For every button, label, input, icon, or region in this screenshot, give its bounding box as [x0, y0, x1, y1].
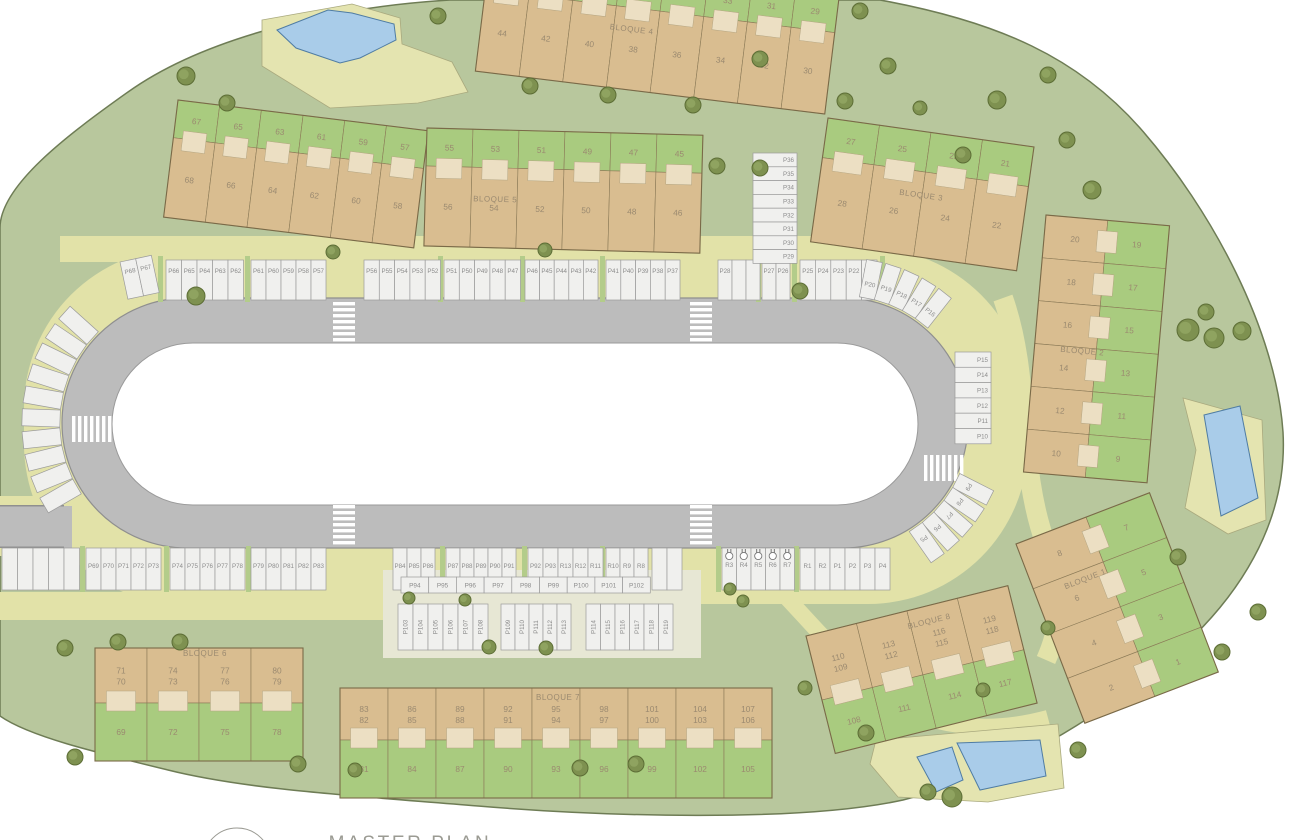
crosswalk-bar	[333, 517, 355, 520]
tree-icon	[852, 3, 868, 19]
stall-label: P41	[608, 268, 620, 275]
stall-label: P86	[422, 563, 434, 570]
unit-number: 24	[940, 212, 951, 223]
patio-terrace	[987, 173, 1019, 197]
stall-label: P80	[268, 563, 280, 570]
tree-canopy-highlight	[990, 93, 1000, 103]
patio-terrace	[351, 728, 378, 748]
tree-icon	[522, 78, 538, 94]
stall-label: P43	[571, 268, 583, 275]
unit-number: 94	[551, 715, 561, 725]
patio-terrace	[620, 163, 646, 184]
parking-stall-P55[interactable]	[379, 260, 394, 300]
patio-terrace	[935, 166, 967, 190]
tree-canopy-highlight	[460, 596, 467, 603]
tree-canopy-highlight	[1200, 306, 1209, 315]
tree-canopy-highlight	[1085, 183, 1095, 193]
tree-icon	[600, 87, 616, 103]
crosswalk-bar	[954, 455, 957, 481]
unit-number: 88	[455, 715, 465, 725]
unit-number: 107	[741, 704, 755, 714]
crosswalk-bar	[936, 455, 939, 481]
tree-canopy-highlight	[944, 790, 955, 801]
stall-label: P51	[446, 268, 458, 275]
parking-stall-P54[interactable]	[395, 260, 410, 300]
stall-label: P72	[133, 563, 145, 570]
stall-label: P81	[283, 563, 295, 570]
stall-label: P94	[409, 582, 421, 589]
patio-terrace	[884, 159, 916, 183]
unit-number: 56	[443, 201, 453, 211]
tree-icon	[172, 634, 188, 650]
tree-canopy-highlight	[179, 69, 189, 79]
bloque-7: 8382868589889291959498971011001041031071…	[340, 688, 772, 798]
parking-row: P79P80P81P82P83	[251, 548, 326, 590]
bloque-5: 555351494745565452504846BLOQUE 5	[424, 128, 703, 253]
patio-terrace	[735, 728, 762, 748]
parking-stall-unmarked[interactable]	[64, 548, 80, 590]
unit-number: 97	[599, 715, 609, 725]
patio-terrace	[399, 728, 426, 748]
crosswalk-bar	[333, 332, 355, 335]
stall-label: P26	[777, 268, 789, 275]
tree-icon	[798, 681, 812, 695]
tree-icon	[219, 95, 235, 111]
patio-terrace	[262, 691, 291, 711]
unit-number: 72	[168, 727, 178, 737]
parking-stall-P26[interactable]	[776, 260, 790, 300]
parking-stall-P47[interactable]	[505, 260, 520, 300]
master-plan-page: P68P67P66P65P64P63P62P61P60P59P58P57P56P…	[0, 0, 1290, 840]
crosswalk-bar	[690, 302, 712, 305]
stall-label: P107	[463, 619, 470, 634]
patio-terrace	[106, 691, 135, 711]
patio-terrace	[1077, 445, 1099, 468]
parking-stall-P53[interactable]	[410, 260, 425, 300]
stall-label: P111	[533, 620, 540, 634]
patio-terrace	[799, 20, 826, 43]
unit-number: 21	[1000, 158, 1011, 169]
lower-path	[0, 592, 392, 620]
stall-label: P10	[977, 433, 989, 440]
parking-stall-P41[interactable]	[606, 260, 621, 300]
stall-label: R7	[783, 562, 791, 569]
patio-terrace	[264, 141, 290, 164]
legend-title: MASTER PLAN	[329, 833, 492, 840]
stall-label: P102	[629, 582, 644, 589]
parking-stall-P22[interactable]	[846, 260, 861, 300]
parking-stall-P49[interactable]	[475, 260, 490, 300]
stall-label: P1	[834, 563, 842, 570]
parking-stall-P44[interactable]	[554, 260, 569, 300]
crosswalk-bar	[690, 308, 712, 311]
parking-stall-P38[interactable]	[650, 260, 665, 300]
patio-terrace	[1081, 402, 1103, 425]
unit-number: 26	[888, 205, 899, 216]
stall-label: P4	[879, 563, 887, 570]
stall-label: P105	[433, 619, 440, 634]
unit-number: 60	[351, 195, 362, 206]
parking-row: R1R2P1P2P3P4	[800, 548, 890, 590]
stall-label: P74	[172, 563, 184, 570]
parking-stall-P58[interactable]	[296, 260, 311, 300]
stall-label: P31	[783, 226, 795, 233]
parking-row: P74P75P76P77P78	[170, 548, 245, 590]
parking-row-vertical-labels: P114P115P116P117P118P119	[586, 604, 673, 650]
tree-icon	[628, 756, 644, 772]
parking-stall-P40[interactable]	[621, 260, 636, 300]
stall-label: P58	[298, 268, 310, 275]
patio-terrace	[348, 151, 374, 174]
patio-terrace	[666, 164, 692, 185]
tree-canopy-highlight	[524, 80, 533, 89]
tree-icon	[1041, 621, 1055, 635]
tree-icon	[177, 67, 195, 85]
tree-canopy-highlight	[839, 95, 848, 104]
tree-canopy-highlight	[59, 642, 68, 651]
tree-icon	[1170, 549, 1186, 565]
crosswalk-bar	[333, 511, 355, 514]
crosswalk-bar	[78, 416, 81, 442]
ev-plug-body	[784, 552, 791, 559]
bloque-2: 20181614121019171513119BLOQUE 2	[1024, 215, 1170, 483]
parking-stall-P37[interactable]	[665, 260, 680, 300]
stall-label: P36	[783, 157, 795, 164]
stall-label: P85	[408, 563, 420, 570]
tree-canopy-highlight	[174, 636, 183, 645]
unit-number: 71	[116, 666, 126, 676]
stall-label: R4	[740, 562, 748, 569]
unit-number: 95	[551, 704, 561, 714]
parking-stall-P52[interactable]	[425, 260, 440, 300]
tree-canopy-highlight	[794, 285, 803, 294]
parking-stall-P42[interactable]	[583, 260, 598, 300]
parking-stall-P59[interactable]	[281, 260, 296, 300]
stall-label: R9	[623, 563, 631, 570]
patio-terrace	[158, 691, 187, 711]
stall-label: P3	[864, 563, 872, 570]
stall-label: P29	[783, 254, 795, 261]
parking-stall-unmarked[interactable]	[22, 428, 62, 449]
stall-label: P104	[418, 619, 425, 634]
tree-icon	[858, 725, 874, 741]
planting-divider	[246, 546, 251, 592]
parking-stall-P39[interactable]	[636, 260, 651, 300]
stall-label: P44	[556, 268, 568, 275]
unit-number: 27	[846, 136, 857, 147]
tree-canopy-highlight	[922, 786, 931, 795]
parking-row-vertical-labels: P103P104P105P106P107P108	[398, 604, 488, 650]
crosswalk-bar	[333, 302, 355, 305]
parking-row-wide: P94P95P96P97P98P99P100P101P102	[401, 577, 650, 593]
tree-icon	[1083, 181, 1101, 199]
stall-label: P40	[623, 268, 635, 275]
tree-icon	[792, 283, 808, 299]
tree-canopy-highlight	[1042, 69, 1051, 78]
stall-label: P61	[253, 268, 265, 275]
unit-number: 45	[675, 148, 685, 158]
stall-label: P64	[199, 268, 211, 275]
unit-number: 82	[359, 715, 369, 725]
parking-stall-P43[interactable]	[569, 260, 584, 300]
parking-stall-unmarked[interactable]	[18, 548, 34, 590]
tree-icon	[1059, 132, 1075, 148]
unit-number: 78	[272, 727, 282, 737]
tree-icon	[955, 147, 971, 163]
tree-icon	[539, 641, 553, 655]
unit-number: 51	[537, 145, 547, 155]
parking-stall-P45[interactable]	[540, 260, 555, 300]
parking-stall-P23[interactable]	[831, 260, 846, 300]
unit-number: 28	[837, 198, 848, 209]
planting-divider	[245, 256, 250, 302]
inner-court	[112, 343, 918, 505]
planting-divider	[716, 546, 721, 592]
parking-stall-P66[interactable]	[166, 260, 182, 300]
parking-arc-stall	[22, 409, 61, 427]
tree-canopy-highlight	[432, 10, 441, 19]
parking-row	[2, 548, 80, 590]
crosswalk-bar	[690, 517, 712, 520]
tree-icon	[709, 158, 725, 174]
unit-number: 30	[803, 65, 814, 76]
parking-row: P46P45P44P43P42	[525, 260, 598, 300]
stall-label: R5	[754, 562, 762, 569]
tree-canopy-highlight	[404, 594, 411, 601]
patio-terrace	[181, 131, 207, 154]
unit-number: 89	[455, 704, 465, 714]
parking-stall-P51[interactable]	[444, 260, 459, 300]
unit-number: 58	[393, 200, 404, 211]
unit-number: 59	[358, 136, 369, 147]
tree-icon	[1204, 328, 1224, 348]
stall-label: P62	[230, 268, 242, 275]
unit-number: 52	[535, 204, 545, 214]
unit-number: 40	[584, 38, 595, 49]
stall-label: P119	[663, 619, 670, 634]
patio-terrace	[390, 156, 416, 179]
crosswalk-bar	[942, 455, 945, 481]
unit-number: 104	[693, 704, 707, 714]
stall-label: P114	[590, 619, 597, 634]
patio-terrace	[436, 158, 462, 179]
crosswalk-bar	[333, 541, 355, 544]
tree-canopy-highlight	[1235, 324, 1245, 334]
parking-stall-P28[interactable]	[718, 260, 732, 300]
tree-icon	[1233, 322, 1251, 340]
stall-label: P14	[977, 372, 989, 379]
parking-row: P69P70P71P72P73	[86, 548, 161, 590]
crosswalk-bar	[690, 505, 712, 508]
tree-icon	[1198, 304, 1214, 320]
tree-canopy-highlight	[539, 245, 547, 253]
patio-terrace	[210, 691, 239, 711]
unit-number: 49	[583, 146, 593, 156]
parking-stall-P50[interactable]	[459, 260, 474, 300]
parking-stall-P56[interactable]	[364, 260, 379, 300]
stall-label: P87	[447, 563, 459, 570]
stall-label: R6	[769, 562, 777, 569]
tree-icon	[110, 634, 126, 650]
tree-canopy-highlight	[738, 597, 745, 604]
stall-label: P57	[313, 268, 325, 275]
unit-number: 84	[407, 764, 417, 774]
unit-number: 87	[455, 764, 465, 774]
parking-stall-P27[interactable]	[762, 260, 776, 300]
parking-stall-unmarked[interactable]	[2, 548, 18, 590]
patio-terrace	[528, 161, 554, 182]
stall-label: P99	[548, 582, 560, 589]
tree-canopy-highlight	[69, 751, 78, 760]
unit-number: 100	[645, 715, 659, 725]
patio-terrace	[712, 10, 739, 33]
tree-canopy-highlight	[799, 683, 807, 691]
road-spur	[0, 506, 72, 548]
crosswalk-bar	[333, 320, 355, 323]
unit-number: 48	[627, 206, 637, 216]
tree-canopy-highlight	[754, 53, 763, 62]
patio-terrace	[625, 0, 652, 22]
tree-canopy-highlight	[574, 762, 583, 771]
unit-number: 77	[220, 666, 230, 676]
crosswalk-bar	[96, 416, 99, 442]
parking-row	[652, 548, 682, 590]
parking-row-vertical-labels: P109P110P111P112P113	[501, 604, 571, 650]
stall-label: P49	[477, 268, 489, 275]
parking-stall-unmarked[interactable]	[746, 260, 760, 300]
parking-stall-unmarked[interactable]	[732, 260, 746, 300]
parking-stall-P48[interactable]	[490, 260, 505, 300]
unit-number: 102	[693, 764, 707, 774]
unit-number: 55	[445, 142, 455, 152]
parking-stall-P62[interactable]	[228, 260, 244, 300]
stall-label: P97	[492, 582, 504, 589]
tree-icon	[1070, 742, 1086, 758]
unit-number: 93	[551, 764, 561, 774]
parking-stall-unmarked[interactable]	[667, 548, 682, 590]
stall-label: P106	[448, 619, 455, 634]
stall-label: P95	[437, 582, 449, 589]
tree-canopy-highlight	[725, 585, 732, 592]
parking-stall-P61[interactable]	[251, 260, 266, 300]
unit-number: 91	[503, 715, 513, 725]
tree-canopy-highlight	[957, 149, 966, 158]
crosswalk-bar	[690, 511, 712, 514]
patio-terrace	[543, 728, 570, 748]
patio-terrace	[832, 151, 864, 175]
tree-icon	[752, 51, 768, 67]
ev-plug-body	[740, 552, 747, 559]
parking-stall-unmarked[interactable]	[33, 548, 49, 590]
tree-canopy-highlight	[112, 636, 121, 645]
tree-icon	[459, 594, 471, 606]
parking-column: P15P14P13P12P11P10	[955, 352, 991, 444]
unit-number: 42	[541, 33, 552, 44]
tree-canopy-highlight	[882, 60, 891, 69]
tree-canopy-highlight	[327, 247, 335, 255]
crosswalk-bar	[102, 416, 105, 442]
tree-icon	[290, 756, 306, 772]
crosswalk-bar	[690, 320, 712, 323]
bloque-6: 717074737776807969727578BLOQUE 6	[95, 648, 303, 761]
unit-number: 69	[116, 727, 126, 737]
crosswalk-bar	[84, 416, 87, 442]
unit-number: 70	[116, 677, 126, 687]
stall-label: P84	[394, 563, 406, 570]
unit-number: 86	[407, 704, 417, 714]
stall-label: P118	[648, 619, 655, 634]
unit-number: 15	[1124, 325, 1134, 336]
unit-number: 68	[184, 174, 195, 185]
ev-plug-body	[726, 552, 733, 559]
stall-label: P70	[103, 563, 115, 570]
tree-canopy-highlight	[854, 5, 863, 14]
stall-label: R12	[575, 563, 587, 570]
patio-terrace	[1088, 316, 1110, 339]
parking-stall-P24[interactable]	[815, 260, 830, 300]
block-label: BLOQUE 7	[536, 693, 580, 702]
tree-canopy-highlight	[540, 643, 548, 651]
stall-label: P50	[461, 268, 473, 275]
block-label: BLOQUE 6	[183, 649, 227, 658]
unit-number: 85	[407, 715, 417, 725]
tree-icon	[837, 93, 853, 109]
patio-terrace	[1096, 230, 1118, 253]
stall-label: P27	[763, 268, 775, 275]
tree-canopy-highlight	[977, 685, 985, 693]
tree-canopy-highlight	[189, 289, 199, 299]
unit-number: 16	[1062, 319, 1072, 330]
parking-stall-P46[interactable]	[525, 260, 540, 300]
unit-number: 61	[316, 131, 327, 142]
tree-icon	[737, 595, 749, 607]
crosswalk-bar	[333, 308, 355, 311]
patio-terrace	[668, 4, 695, 27]
crosswalk-bar	[690, 541, 712, 544]
unit-number: 105	[741, 764, 755, 774]
crosswalk-bar	[333, 529, 355, 532]
stall-label: P39	[637, 268, 649, 275]
parking-row: P27P26	[762, 260, 790, 300]
unit-number: 79	[272, 677, 282, 687]
stall-label: P90	[489, 563, 501, 570]
unit-number: 62	[309, 190, 320, 201]
parking-stall-unmarked[interactable]	[652, 548, 667, 590]
parking-row: P41P40P39P38P37	[606, 260, 680, 300]
parking-row: P28	[718, 260, 760, 300]
tree-icon	[430, 8, 446, 24]
stall-label: P73	[148, 563, 160, 570]
unit-number: 98	[599, 704, 609, 714]
parking-stall-P60[interactable]	[266, 260, 281, 300]
tree-icon	[538, 243, 552, 257]
unit-number: 31	[766, 0, 777, 11]
stall-label: P101	[601, 582, 616, 589]
patio-terrace	[447, 728, 474, 748]
parking-row: P51P50P49P48P47	[444, 260, 521, 300]
crosswalk-bar	[333, 505, 355, 508]
unit-number: 12	[1055, 405, 1065, 416]
parking-stall-P57[interactable]	[311, 260, 326, 300]
unit-number: 90	[503, 764, 513, 774]
stall-label: P22	[848, 268, 860, 275]
parking-stall-P63[interactable]	[213, 260, 229, 300]
stall-label: P33	[783, 199, 795, 206]
unit-number: 25	[897, 143, 908, 154]
parking-stall-unmarked[interactable]	[49, 548, 65, 590]
parking-stall-unmarked[interactable]	[22, 409, 61, 427]
stall-label: P2	[849, 563, 857, 570]
